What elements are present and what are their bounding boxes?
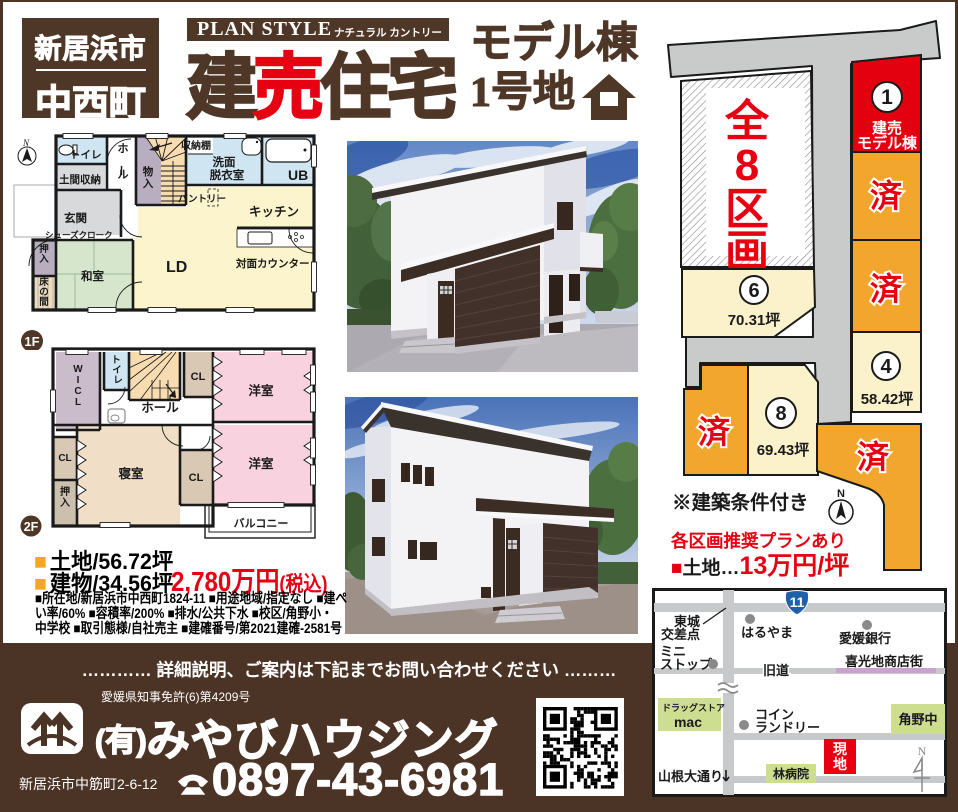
svg-text:8: 8 [775, 403, 786, 425]
svg-text:2F: 2F [24, 520, 39, 534]
svg-text:69.43坪: 69.43坪 [757, 442, 810, 459]
svg-text:パントリー: パントリー [178, 193, 226, 205]
svg-text:全: 全 [724, 96, 770, 146]
svg-text:CL: CL [191, 371, 206, 383]
svg-text:洗面: 洗面 [213, 155, 236, 169]
svg-text:8: 8 [735, 141, 759, 190]
svg-text:キッチン: キッチン [249, 205, 299, 219]
svg-text:ドラッグストア: ドラッグストア [662, 702, 725, 713]
svg-text:角野中: 角野中 [898, 712, 937, 727]
svg-text:トイレ: トイレ [70, 149, 102, 161]
svg-text:現: 現 [833, 741, 847, 757]
svg-text:林病院: 林病院 [773, 766, 809, 781]
svg-text:■土地…13万円/坪: ■土地…13万円/坪 [671, 552, 849, 580]
svg-text:11: 11 [790, 594, 805, 610]
svg-text:ホール: ホール [141, 401, 179, 415]
svg-text:洋室: 洋室 [248, 456, 274, 471]
svg-text:和室: 和室 [81, 269, 104, 283]
svg-text:モデル棟: モデル棟 [857, 134, 918, 152]
svg-text:ホール: ホール [115, 142, 129, 181]
svg-text:押入: 押入 [60, 485, 70, 509]
svg-text:バルコニー: バルコニー [234, 517, 289, 530]
svg-text:愛媛銀行: 愛媛銀行 [839, 631, 891, 646]
svg-text:山根大通り: 山根大通り [658, 769, 723, 784]
svg-text:物入: 物入 [143, 165, 154, 190]
svg-text:洋室: 洋室 [248, 383, 274, 398]
svg-text:喜光地商店街: 喜光地商店街 [845, 654, 923, 669]
svg-text:地: 地 [833, 756, 847, 772]
svg-text:70.31坪: 70.31坪 [728, 312, 781, 329]
svg-text:交差点: 交差点 [661, 627, 700, 642]
svg-text:N: N [918, 744, 927, 758]
svg-text:寝室: 寝室 [118, 466, 144, 481]
svg-text:旧道: 旧道 [763, 663, 789, 678]
svg-text:済: 済 [870, 271, 903, 307]
svg-text:押入: 押入 [38, 243, 49, 265]
svg-text:シューズクローク: シューズクローク [45, 230, 113, 240]
svg-text:N: N [22, 138, 30, 148]
svg-text:対面カウンター: 対面カウンター [235, 257, 310, 270]
svg-text:LD: LD [166, 259, 187, 276]
svg-text:脱衣室: 脱衣室 [210, 168, 245, 182]
svg-text:収納棚: 収納棚 [181, 139, 211, 152]
svg-text:玄関: 玄関 [64, 211, 87, 225]
svg-text:土間収納: 土間収納 [59, 173, 101, 186]
svg-text:済: 済 [870, 178, 903, 214]
svg-text:4: 4 [880, 356, 892, 378]
svg-text:各区画推奨プランあり: 各区画推奨プランあり [670, 531, 846, 551]
svg-text:mac: mac [674, 714, 702, 730]
svg-text:6: 6 [748, 280, 759, 302]
svg-text:ストップ: ストップ [660, 657, 713, 672]
svg-text:N: N [837, 488, 845, 500]
svg-text:はるやま: はるやま [741, 625, 793, 640]
svg-text:CL: CL [58, 453, 71, 464]
svg-text:CL: CL [189, 472, 204, 484]
svg-text:※建築条件付き: ※建築条件付き [672, 491, 809, 514]
svg-text:ランドリー: ランドリー [755, 720, 820, 735]
svg-text:UB: UB [288, 167, 308, 183]
svg-text:床の間: 床の間 [39, 276, 49, 308]
svg-text:済: 済 [857, 439, 890, 475]
svg-text:1: 1 [881, 86, 893, 109]
svg-text:58.42坪: 58.42坪 [861, 391, 914, 408]
svg-text:済: 済 [698, 414, 731, 450]
